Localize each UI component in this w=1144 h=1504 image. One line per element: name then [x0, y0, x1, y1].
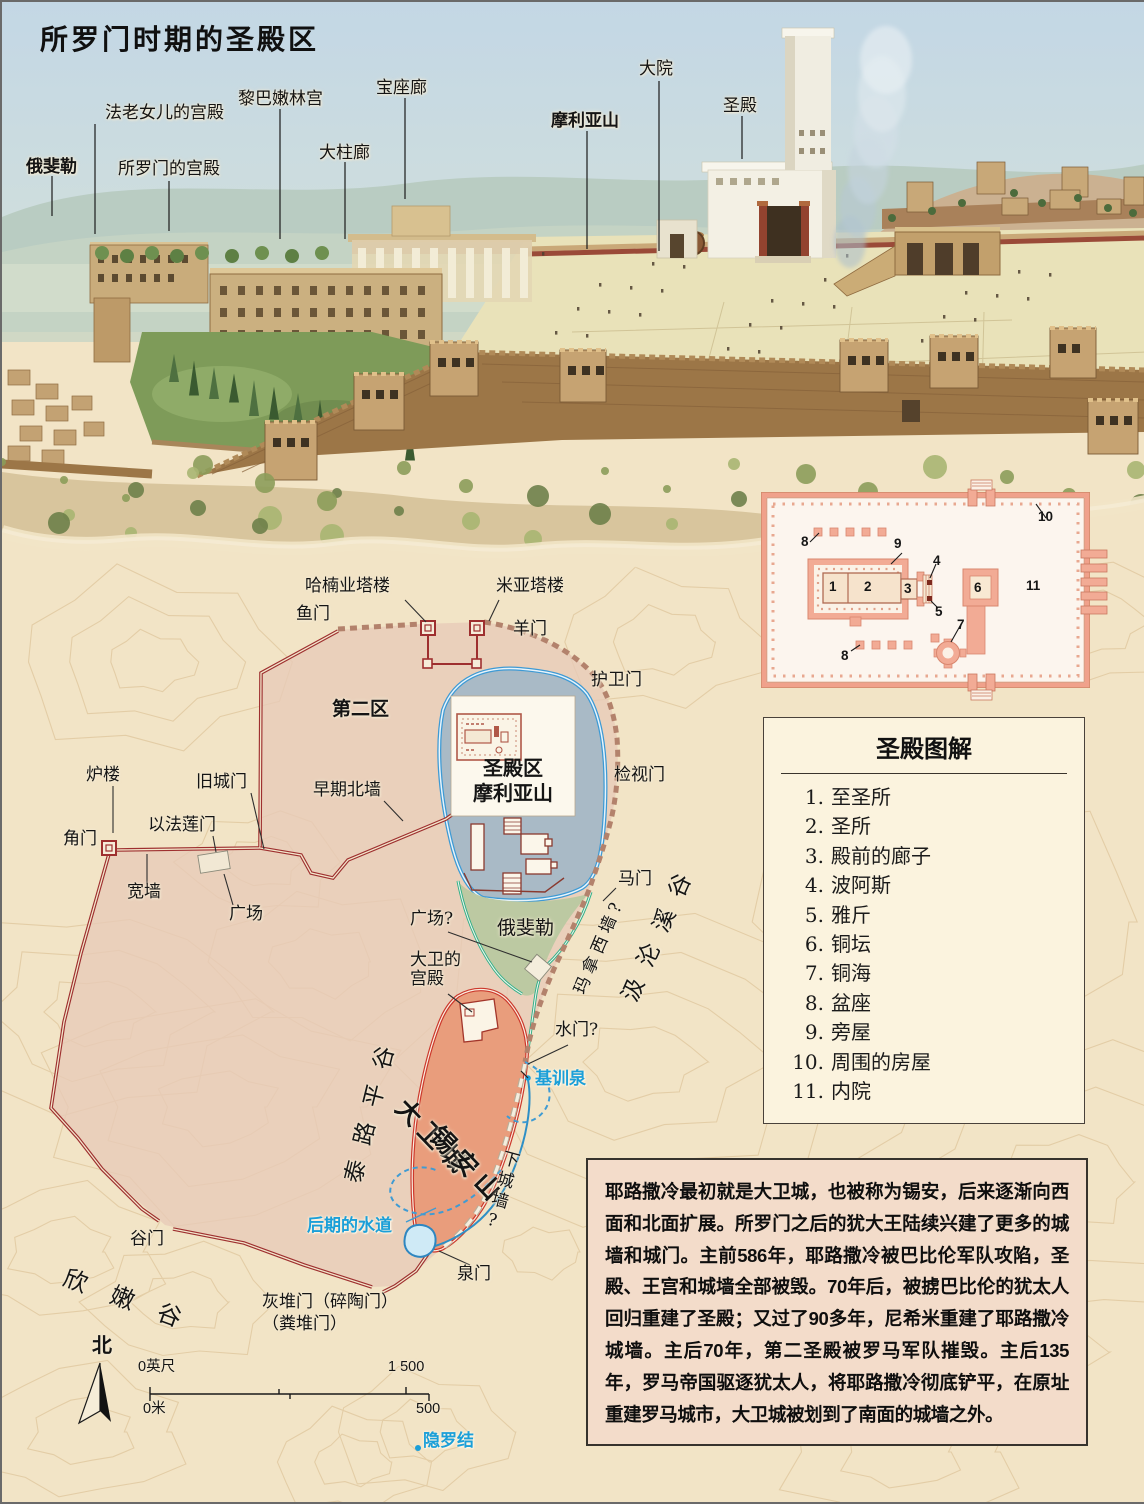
label-solomons-palace: 所罗门的宫殿: [118, 160, 220, 179]
plan-number-3: 3: [904, 581, 912, 596]
label-dung-gate: （粪堆门）: [262, 1315, 347, 1334]
plan-number-4: 4: [933, 553, 941, 568]
label-temple-area-subtitle: 摩利亚山: [451, 781, 575, 806]
legend-item: 5.雅斤: [764, 901, 1084, 930]
legend-item: 6.铜坛: [764, 930, 1084, 959]
label-ophel-illustration: 俄斐勒: [26, 158, 77, 177]
legend-item: 1.至圣所: [764, 783, 1084, 812]
plan-number-9: 9: [894, 536, 902, 551]
label-tower-of-hananel: 哈楠业塔楼: [305, 577, 390, 596]
label-north: 北: [92, 1334, 112, 1356]
label-davids-palace-line2: 宫殿: [410, 970, 461, 989]
label-temple-illustration: 圣殿: [723, 97, 757, 116]
legend-item: 9.旁屋: [764, 1018, 1084, 1047]
legend-item: 3.殿前的廊子: [764, 842, 1084, 871]
label-sheep-gate: 羊门: [513, 620, 547, 639]
label-old-city-gate: 旧城门: [196, 773, 247, 792]
legend-item: 2.圣所: [764, 812, 1084, 841]
label-great-court: 大院: [639, 60, 673, 79]
plan-number-1: 1: [829, 579, 837, 594]
plan-number-2: 2: [864, 579, 872, 594]
label-gihon-spring: 基训泉: [535, 1064, 586, 1089]
plan-number-5: 5: [935, 604, 943, 619]
plan-number-11: 11: [1026, 578, 1040, 593]
throne-hall-building: [392, 206, 450, 236]
scale-feet-start: 0英尺: [138, 1359, 175, 1375]
label-temple-area-box: 圣殿区 摩利亚山: [451, 756, 575, 806]
pool: [404, 1225, 435, 1257]
label-early-north-wall: 早期北墙: [313, 781, 381, 800]
label-throne-hall: 宝座廊: [376, 79, 427, 98]
label-lebanon-forest-house: 黎巴嫩林宫: [238, 90, 323, 109]
label-ephraim-gate: 以法莲门: [148, 816, 216, 835]
plan-number-10: 10: [1038, 509, 1053, 524]
label-spring-gate: 泉门: [457, 1265, 491, 1284]
plan-number-8a: 8: [801, 534, 809, 549]
label-inspection-gate: 检视门: [614, 766, 665, 785]
temple-legend-box: 圣殿图解 1.至圣所 2.圣所 3.殿前的廊子 4.波阿斯 5.雅斤 6.铜坛 …: [763, 717, 1085, 1124]
plan-number-7: 7: [957, 617, 965, 632]
label-ophel-map: 俄斐勒: [497, 918, 554, 939]
legend-title: 圣殿图解: [764, 729, 1084, 764]
legend-item: 7.铜海: [764, 959, 1084, 988]
label-en-rogel: 隐罗结: [423, 1426, 474, 1451]
legend-item: 8.盆座: [764, 989, 1084, 1018]
temple-tower: [782, 28, 834, 170]
page-title: 所罗门时期的圣殿区: [40, 18, 319, 58]
label-guard-gate: 护卫门: [591, 671, 642, 690]
plan-pillar-jachin: [927, 596, 932, 601]
corner-gate-tower: [102, 841, 116, 855]
label-plaza-q: 广场?: [410, 910, 453, 929]
scale-meters-start: 0米: [143, 1401, 166, 1417]
label-tower-of-meah: 米亚塔楼: [496, 577, 564, 596]
label-ash-gate: 灰堆门（碎陶门）: [262, 1293, 398, 1312]
history-text-box: 耶路撒冷最初就是大卫城，也被称为锡安，后来逐渐向西面和北面扩展。所罗门之后的犹大…: [586, 1158, 1088, 1446]
scale-meters-end: 500: [416, 1401, 440, 1417]
label-plaza: 广场: [229, 905, 263, 924]
scale-feet-end: 1 500: [388, 1359, 424, 1375]
legend-item: 10.周围的房屋: [764, 1048, 1084, 1077]
label-temple-area-title: 圣殿区: [451, 756, 575, 781]
label-mount-moriah-illustration: 摩利亚山: [551, 112, 619, 131]
temple-building: [702, 162, 836, 263]
infographic-solomon-temple-area: 所罗门时期的圣殿区 法老女儿的宫殿 俄斐勒 所罗门的宫殿 黎巴嫩林宫 大柱廊 宝…: [0, 0, 1144, 1504]
plan-number-6: 6: [974, 580, 982, 595]
label-broad-wall: 宽墙: [127, 883, 161, 902]
temple-floor-plan: [762, 480, 1108, 700]
legend-divider: [781, 773, 1067, 774]
plan-number-8b: 8: [841, 648, 849, 663]
label-valley-gate: 谷门: [130, 1230, 164, 1249]
label-second-district: 第二区: [332, 699, 389, 720]
en-rogel-dot: [415, 1445, 421, 1451]
label-davids-palace-line1: 大卫的: [410, 951, 461, 970]
label-horse-gate: 马门: [618, 870, 652, 889]
label-corner-gate: 角门: [63, 830, 97, 849]
label-great-colonnade: 大柱廊: [319, 144, 370, 163]
label-water-gate: 水门?: [555, 1021, 598, 1040]
label-furnace-tower: 炉楼: [86, 766, 120, 785]
label-pharaohs-daughter-palace: 法老女儿的宫殿: [105, 104, 224, 123]
label-fish-gate: 鱼门: [296, 605, 330, 624]
mini-temple-plan-icon: [457, 714, 521, 760]
legend-item: 11.内院: [764, 1077, 1084, 1106]
plan-pillar-boaz: [927, 580, 932, 585]
label-davids-palace: 大卫的 宫殿: [410, 951, 461, 989]
legend-item: 4.波阿斯: [764, 871, 1084, 900]
label-later-aqueduct: 后期的水道: [307, 1211, 392, 1236]
